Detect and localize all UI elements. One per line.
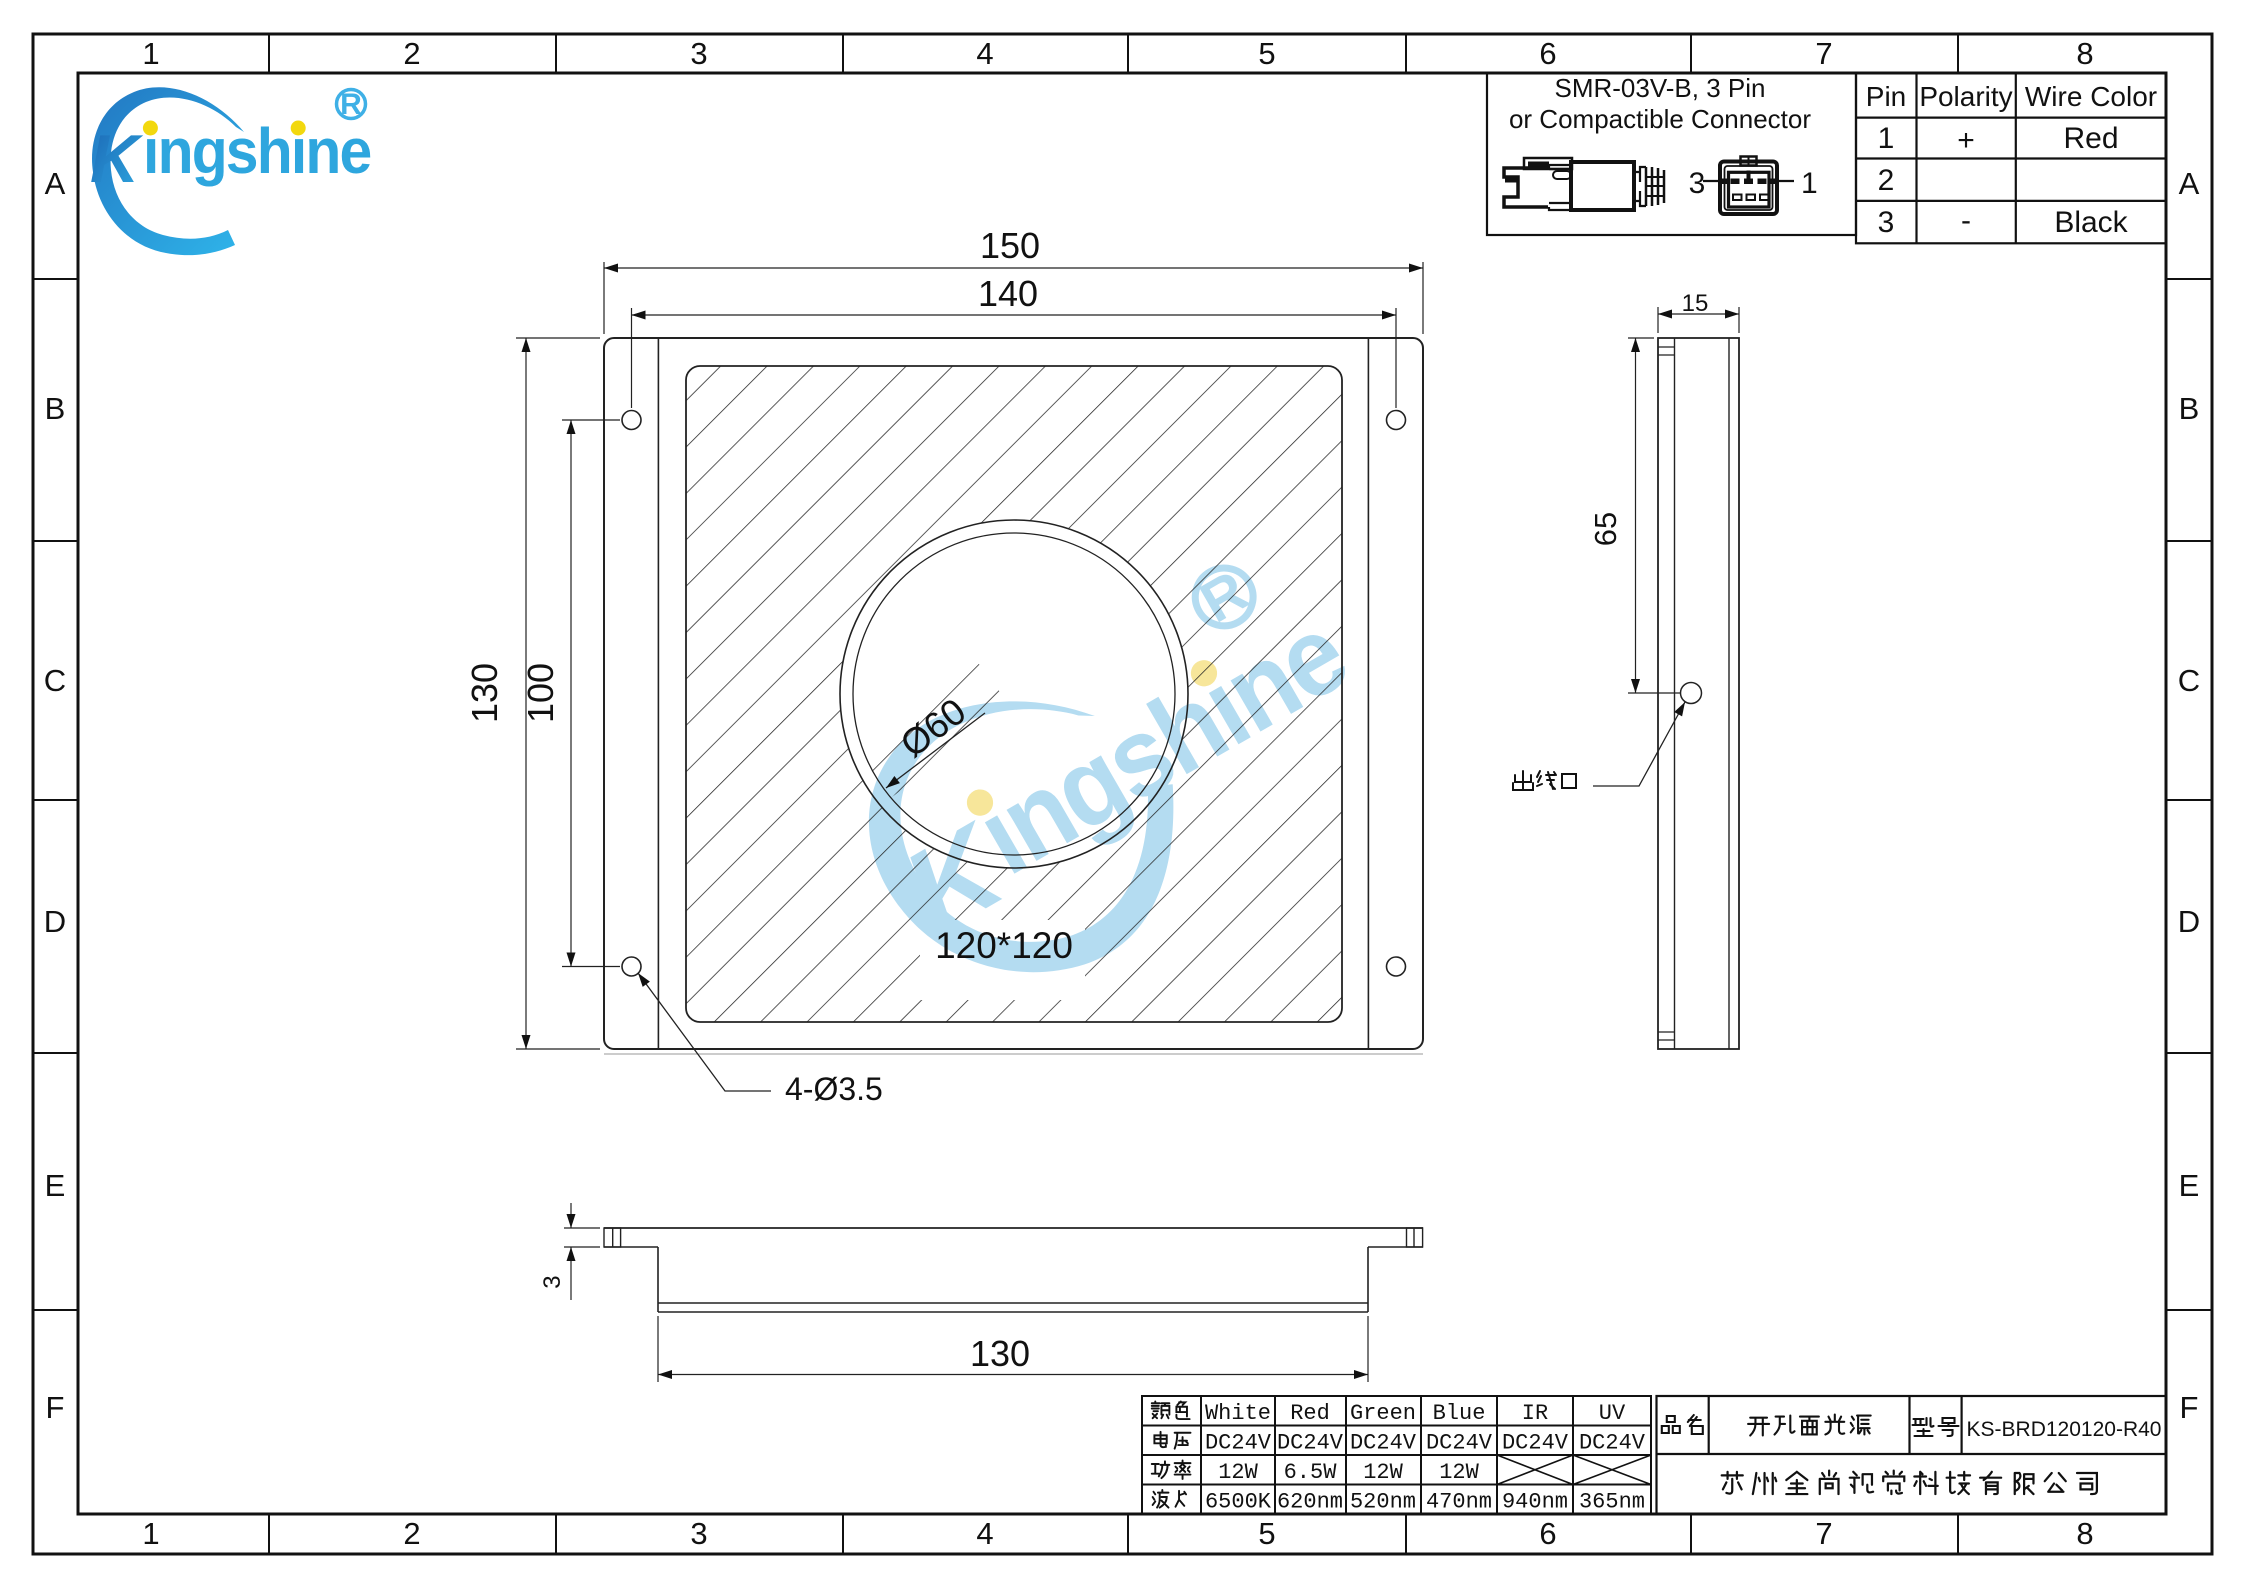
svg-text:Green: Green (1350, 1401, 1416, 1426)
svg-text:E: E (45, 1168, 66, 1203)
svg-text:F: F (2180, 1390, 2199, 1425)
svg-text:Wire Color: Wire Color (2025, 81, 2157, 112)
svg-text:7: 7 (1815, 36, 1832, 71)
svg-text:2: 2 (1878, 164, 1895, 197)
svg-text:KS-BRD120120-R40: KS-BRD120120-R40 (1967, 1418, 2162, 1441)
svg-text:Red: Red (1290, 1401, 1330, 1426)
svg-text:+: + (1957, 124, 1975, 157)
svg-text:140: 140 (978, 273, 1038, 314)
svg-text:6: 6 (1539, 1516, 1556, 1551)
svg-text:3: 3 (1689, 167, 1706, 200)
svg-text:620nm: 620nm (1277, 1490, 1343, 1515)
svg-text:4-Ø3.5: 4-Ø3.5 (785, 1071, 883, 1107)
svg-text:B: B (45, 391, 66, 426)
svg-text:3: 3 (690, 1516, 707, 1551)
svg-text:-: - (1961, 204, 1971, 237)
svg-text:D: D (2178, 904, 2200, 939)
svg-text:6500K: 6500K (1205, 1490, 1272, 1515)
svg-text:K: K (90, 121, 144, 197)
svg-text:6: 6 (1539, 36, 1556, 71)
svg-text:A: A (2179, 166, 2200, 201)
svg-text:C: C (2178, 663, 2200, 698)
svg-text:120*120: 120*120 (935, 925, 1073, 966)
svg-text:1: 1 (142, 36, 159, 71)
svg-text:6.5W: 6.5W (1284, 1460, 1338, 1485)
svg-text:15: 15 (1682, 290, 1709, 317)
svg-text:4: 4 (976, 36, 993, 71)
svg-text:White: White (1205, 1401, 1271, 1426)
svg-text:IR: IR (1522, 1401, 1548, 1426)
svg-text:A: A (45, 166, 66, 201)
svg-text:DC24V: DC24V (1277, 1431, 1344, 1456)
svg-text:1: 1 (1878, 122, 1895, 155)
svg-text:C: C (44, 663, 66, 698)
svg-text:365nm: 365nm (1579, 1490, 1645, 1515)
svg-text:R: R (340, 88, 362, 121)
svg-text:12W: 12W (1218, 1460, 1258, 1485)
svg-text:520nm: 520nm (1350, 1490, 1416, 1515)
svg-text:1: 1 (1801, 167, 1818, 200)
svg-text:UV: UV (1599, 1401, 1626, 1426)
svg-text:470nm: 470nm (1426, 1490, 1492, 1515)
svg-text:3: 3 (690, 36, 707, 71)
svg-text:E: E (2179, 1168, 2200, 1203)
svg-text:SMR-03V-B, 3 Pin: SMR-03V-B, 3 Pin (1555, 73, 1766, 103)
svg-text:2: 2 (403, 36, 420, 71)
svg-text:12W: 12W (1363, 1460, 1403, 1485)
svg-text:Red: Red (2063, 122, 2118, 155)
svg-text:130: 130 (464, 663, 505, 723)
svg-text:940nm: 940nm (1502, 1490, 1568, 1515)
svg-text:Polarity: Polarity (1919, 81, 2012, 112)
svg-text:3: 3 (1878, 206, 1895, 239)
svg-text:7: 7 (1815, 1516, 1832, 1551)
svg-text:D: D (44, 904, 66, 939)
svg-text:8: 8 (2076, 36, 2093, 71)
svg-text:100: 100 (520, 663, 561, 723)
svg-text:DC24V: DC24V (1350, 1431, 1417, 1456)
svg-text:DC24V: DC24V (1579, 1431, 1646, 1456)
svg-text:2: 2 (403, 1516, 420, 1551)
svg-text:DC24V: DC24V (1205, 1431, 1272, 1456)
svg-text:Blue: Blue (1433, 1401, 1486, 1426)
svg-text:5: 5 (1258, 36, 1275, 71)
svg-text:B: B (2179, 391, 2200, 426)
svg-text:Black: Black (2054, 206, 2128, 239)
svg-text:65: 65 (1588, 512, 1623, 546)
svg-text:3: 3 (539, 1275, 566, 1288)
svg-text:Pin: Pin (1866, 81, 1906, 112)
svg-text:1: 1 (142, 1516, 159, 1551)
svg-text:F: F (46, 1390, 65, 1425)
svg-text:12W: 12W (1439, 1460, 1479, 1485)
svg-text:150: 150 (980, 225, 1040, 266)
svg-text:DC24V: DC24V (1426, 1431, 1493, 1456)
svg-text:ingshine: ingshine (143, 116, 371, 188)
svg-text:or Compactible Connector: or Compactible Connector (1509, 104, 1811, 134)
svg-text:5: 5 (1258, 1516, 1275, 1551)
svg-text:DC24V: DC24V (1502, 1431, 1569, 1456)
svg-text:8: 8 (2076, 1516, 2093, 1551)
svg-text:4: 4 (976, 1516, 993, 1551)
svg-text:130: 130 (970, 1333, 1030, 1374)
